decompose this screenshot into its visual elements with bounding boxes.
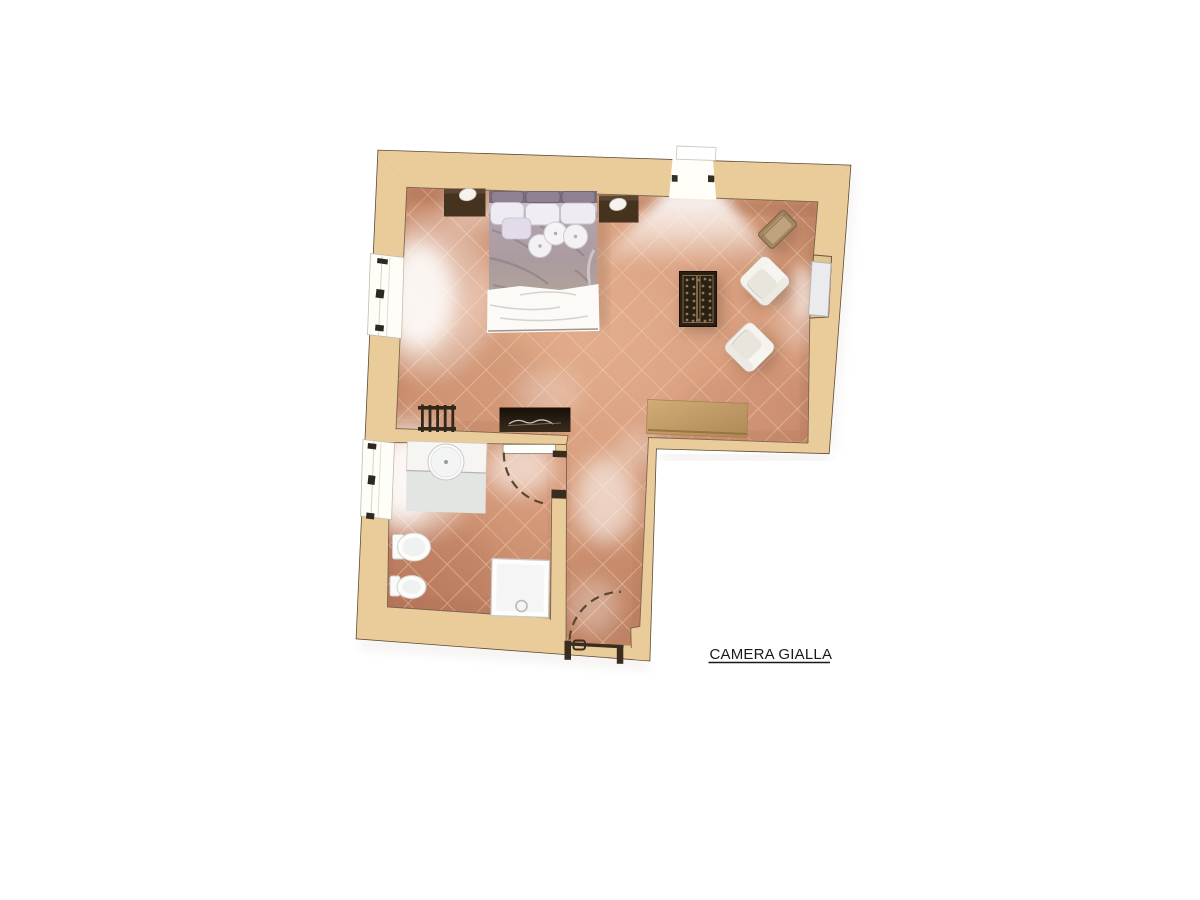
svg-text:CAMERA GIALLA: CAMERA GIALLA (710, 646, 833, 663)
